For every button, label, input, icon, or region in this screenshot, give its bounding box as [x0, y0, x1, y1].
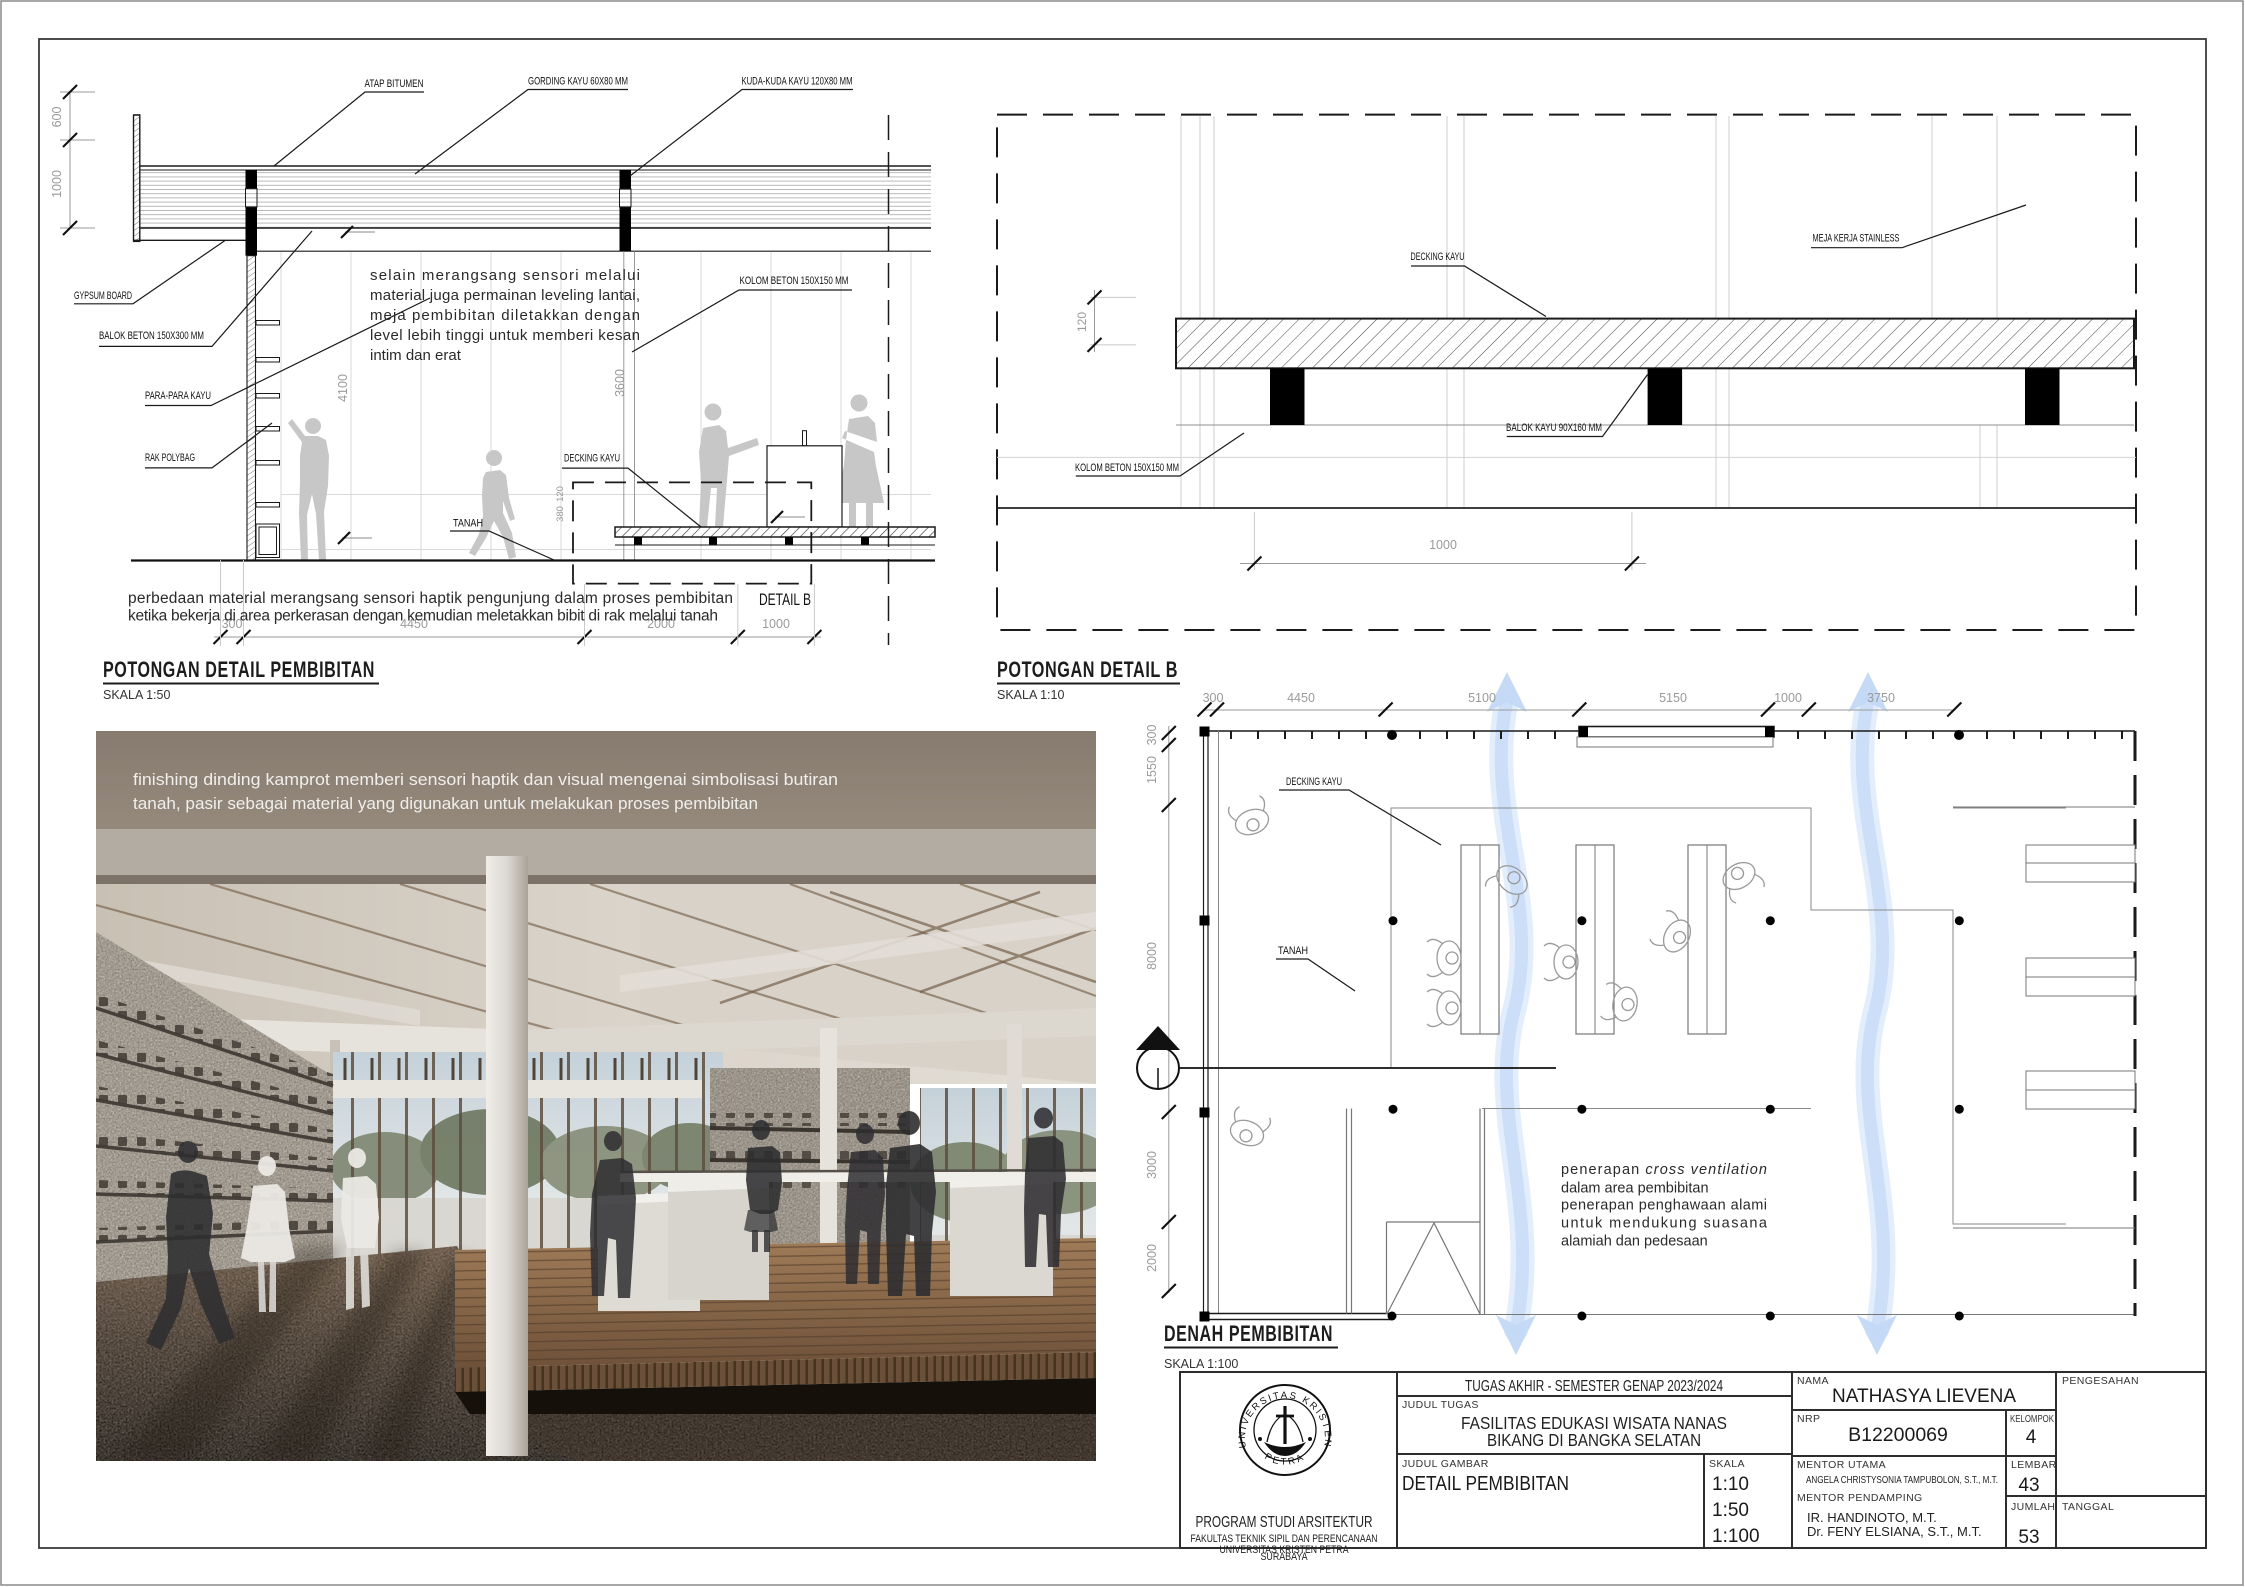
svg-text:4100: 4100	[336, 374, 350, 402]
svg-text:1000: 1000	[1429, 538, 1457, 552]
svg-text:ketika bekerja di area perkera: ketika bekerja di area perkerasan dengan…	[128, 608, 718, 625]
svg-text:120: 120	[1075, 312, 1089, 332]
svg-text:KELOMPOK: KELOMPOK	[2010, 1414, 2054, 1425]
svg-text:SKALA 1:100: SKALA 1:100	[1164, 1357, 1238, 1371]
svg-text:300: 300	[1145, 725, 1159, 746]
svg-text:TANAH: TANAH	[453, 518, 483, 530]
svg-text:B12200069: B12200069	[1848, 1424, 1948, 1446]
svg-text:DETAIL PEMBIBITAN: DETAIL PEMBIBITAN	[1402, 1473, 1569, 1495]
svg-text:penerapan penghawaan alami: penerapan penghawaan alami	[1561, 1198, 1767, 1214]
svg-text:Dr. FENY ELSIANA, S.T., M.T.: Dr. FENY ELSIANA, S.T., M.T.	[1807, 1524, 1982, 1539]
svg-text:dalam area pembibitan: dalam area pembibitan	[1561, 1181, 1709, 1197]
svg-text:meja pembibitan diletakkan den: meja pembibitan diletakkan dengan	[370, 307, 640, 324]
svg-text:perbedaan material merangsang: perbedaan material merangsang sensori ha…	[128, 590, 733, 607]
svg-text:DETAIL B: DETAIL B	[759, 591, 811, 609]
svg-text:GYPSUM BOARD: GYPSUM BOARD	[74, 290, 132, 302]
svg-text:NAMA: NAMA	[1797, 1375, 1829, 1387]
svg-text:MENTOR UTAMA: MENTOR UTAMA	[1797, 1459, 1886, 1471]
svg-text:BIKANG DI BANGKA SELATAN: BIKANG DI BANGKA SELATAN	[1487, 1430, 1701, 1450]
svg-text:KUDA-KUDA KAYU 120X80 MM: KUDA-KUDA KAYU 120X80 MM	[742, 76, 853, 88]
svg-text:SKALA 1:50: SKALA 1:50	[103, 688, 170, 702]
svg-text:TANGGAL: TANGGAL	[2062, 1501, 2114, 1513]
svg-text:43: 43	[2018, 1475, 2039, 1496]
svg-text:3600: 3600	[613, 369, 627, 397]
svg-text:1:100: 1:100	[1712, 1526, 1760, 1547]
svg-text:NRP: NRP	[1797, 1413, 1820, 1425]
svg-text:1000: 1000	[50, 170, 64, 198]
svg-text:tanah, pasir sebagai material: tanah, pasir sebagai material yang digun…	[133, 795, 758, 813]
svg-text:JUDUL TUGAS: JUDUL TUGAS	[1402, 1399, 1479, 1411]
svg-text:DENAH PEMBIBITAN: DENAH PEMBIBITAN	[1164, 1321, 1333, 1346]
svg-text:53: 53	[2018, 1527, 2039, 1548]
svg-text:DECKING KAYU: DECKING KAYU	[1411, 251, 1465, 263]
svg-text:finishing dinding kamprot memb: finishing dinding kamprot memberi sensor…	[133, 771, 838, 789]
svg-text:PROGRAM STUDI ARSITEKTUR: PROGRAM STUDI ARSITEKTUR	[1196, 1514, 1373, 1531]
svg-text:1:50: 1:50	[1712, 1500, 1749, 1521]
svg-text:KOLOM BETON 150X150 MM: KOLOM BETON 150X150 MM	[1075, 462, 1179, 474]
svg-text:4450: 4450	[1287, 691, 1315, 705]
svg-text:380: 380	[555, 506, 566, 522]
svg-text:8000: 8000	[1145, 942, 1159, 970]
svg-text:3750: 3750	[1867, 691, 1895, 705]
svg-text:selain merangsang sensori mela: selain merangsang sensori melalui	[370, 267, 640, 284]
svg-text:MENTOR PENDAMPING: MENTOR PENDAMPING	[1797, 1492, 1923, 1504]
svg-text:MEJA KERJA STAINLESS: MEJA KERJA STAINLESS	[1813, 233, 1900, 245]
svg-text:4: 4	[2026, 1427, 2037, 1448]
svg-text:JUDUL GAMBAR: JUDUL GAMBAR	[1402, 1458, 1489, 1470]
svg-text:ANGELA CHRISTYSONIA TAMPUBOLON: ANGELA CHRISTYSONIA TAMPUBOLON, S.T., M.…	[1806, 1475, 1998, 1486]
svg-text:RAK POLYBAG: RAK POLYBAG	[145, 452, 195, 464]
svg-text:BALOK KAYU 90X160 MM: BALOK KAYU 90X160 MM	[1506, 422, 1602, 434]
svg-text:1550: 1550	[1145, 756, 1159, 784]
svg-text:untuk mendukung suasana: untuk mendukung suasana	[1561, 1216, 1768, 1232]
svg-text:5150: 5150	[1659, 691, 1687, 705]
svg-text:DECKING KAYU: DECKING KAYU	[1286, 776, 1342, 788]
svg-text:LEMBAR: LEMBAR	[2011, 1459, 2057, 1471]
svg-text:GORDING KAYU 60X80 MM: GORDING KAYU 60X80 MM	[528, 76, 628, 88]
svg-text:intim dan erat: intim dan erat	[370, 347, 462, 364]
svg-text:1000: 1000	[762, 617, 790, 631]
svg-text:ATAP BITUMEN: ATAP BITUMEN	[365, 78, 424, 90]
svg-text:material juga permainan leveli: material juga permainan leveling lantai,	[370, 287, 640, 304]
svg-text:SKALA 1:10: SKALA 1:10	[997, 688, 1064, 702]
svg-text:1000: 1000	[1774, 691, 1802, 705]
svg-text:300: 300	[1203, 691, 1224, 705]
svg-text:TUGAS AKHIR - SEMESTER GENAP 2: TUGAS AKHIR - SEMESTER GENAP 2023/2024	[1465, 1378, 1723, 1395]
svg-text:JUMLAH: JUMLAH	[2011, 1501, 2055, 1513]
svg-text:alamiah dan pedesaan: alamiah dan pedesaan	[1561, 1234, 1708, 1250]
svg-text:SURABAYA: SURABAYA	[1261, 1551, 1309, 1563]
svg-text:IR. HANDINOTO, M.T.: IR. HANDINOTO, M.T.	[1807, 1510, 1937, 1525]
svg-text:3000: 3000	[1145, 1151, 1159, 1179]
svg-text:POTONGAN DETAIL B: POTONGAN DETAIL B	[997, 657, 1178, 682]
svg-text:DECKING KAYU: DECKING KAYU	[564, 453, 620, 465]
svg-text:600: 600	[50, 107, 64, 128]
svg-text:120: 120	[555, 486, 566, 502]
svg-text:penerapan cross ventilation: penerapan cross ventilation	[1561, 1162, 1767, 1178]
svg-text:SKALA: SKALA	[1709, 1458, 1745, 1470]
svg-text:level lebih tinggi untuk membe: level lebih tinggi untuk memberi kesan	[370, 327, 640, 344]
svg-text:1:10: 1:10	[1712, 1474, 1749, 1495]
svg-text:5100: 5100	[1468, 691, 1496, 705]
svg-text:PARA-PARA KAYU: PARA-PARA KAYU	[145, 390, 211, 402]
svg-text:POTONGAN DETAIL PEMBIBITAN: POTONGAN DETAIL PEMBIBITAN	[103, 657, 375, 682]
svg-text:2000: 2000	[1145, 1244, 1159, 1272]
svg-text:BALOK BETON 150X300 MM: BALOK BETON 150X300 MM	[99, 330, 204, 342]
svg-text:KOLOM BETON 150X150 MM: KOLOM BETON 150X150 MM	[740, 275, 849, 287]
svg-text:PENGESAHAN: PENGESAHAN	[2062, 1375, 2139, 1387]
svg-text:TANAH: TANAH	[1278, 945, 1308, 957]
svg-text:NATHASYA LIEVENA: NATHASYA LIEVENA	[1832, 1385, 2016, 1407]
